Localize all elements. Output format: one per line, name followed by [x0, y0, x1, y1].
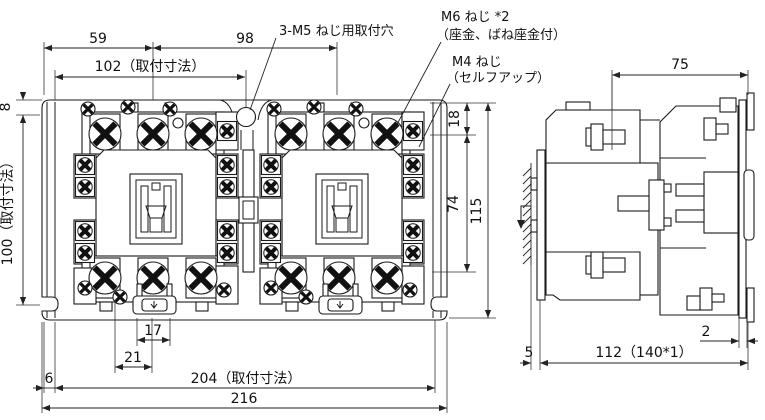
side-body [531, 78, 754, 322]
surface-arrow-head [517, 220, 525, 229]
note-m4-line2: （セルフアップ） [446, 71, 550, 86]
mounting-hole [237, 108, 256, 127]
dim-18: 18 [447, 110, 463, 128]
note-m4-line1: M4 ねじ [452, 55, 502, 70]
dim-98: 98 [236, 31, 254, 47]
contactor-unit-left [74, 100, 238, 314]
side-view [517, 78, 754, 322]
dim-216: 216 [231, 391, 258, 407]
dim-17: 17 [144, 323, 162, 339]
front-view [42, 100, 447, 320]
contactor-unit-right [260, 100, 424, 314]
dim-8: 8 [0, 103, 14, 112]
dim-100: 100（取付寸法） [0, 155, 16, 266]
dim-21: 21 [124, 350, 142, 366]
dim-112: 112（140*1） [595, 345, 692, 361]
dim-102: 102（取付寸法） [95, 59, 206, 75]
dim-59: 59 [89, 31, 107, 47]
technical-drawing-page: 59 98 102（取付寸法） 8 100（取付寸法） 18 74 115 17… [0, 0, 765, 416]
note-m6-line2: （座金、ばね座金付） [436, 27, 566, 43]
dim-115: 115 [469, 198, 485, 225]
dim-74: 74 [446, 195, 462, 213]
note-m6-line1: M6 ねじ *2 [441, 10, 510, 25]
contactor-outline-drawing: 59 98 102（取付寸法） 8 100（取付寸法） 18 74 115 17… [0, 0, 765, 416]
dim-2: 2 [702, 324, 711, 340]
dim-5: 5 [525, 345, 534, 361]
mounting-surface [517, 163, 531, 265]
dim-6: 6 [45, 371, 54, 387]
dim-204: 204（取付寸法） [191, 371, 302, 387]
dim-75: 75 [671, 57, 689, 73]
leader-mount-hole [250, 38, 276, 110]
note-mount-hole: 3-M5 ねじ用取付穴 [279, 24, 394, 39]
